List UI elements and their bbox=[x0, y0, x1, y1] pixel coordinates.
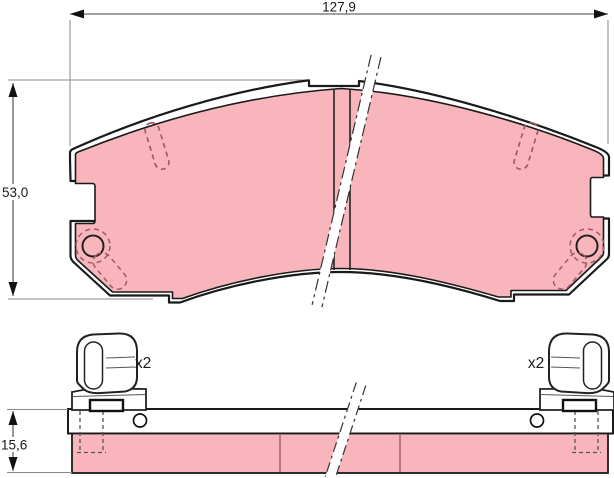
height-dimension-label: 53,0 bbox=[2, 185, 28, 200]
rivet-hole-right bbox=[531, 414, 544, 427]
arrowhead-top bbox=[9, 83, 18, 97]
brake-pad-technical-drawing: 127,9 53,0 bbox=[0, 0, 614, 478]
clip-tab bbox=[90, 400, 123, 411]
arrowhead-right bbox=[594, 10, 608, 19]
retaining-clip-right bbox=[540, 333, 614, 411]
clip-quantity-label-right: x2 bbox=[528, 355, 544, 372]
clip-quantity-label-left: x2 bbox=[135, 355, 151, 372]
arrowhead-left bbox=[70, 10, 84, 19]
arrowhead-bottom bbox=[9, 457, 18, 471]
retaining-clip-left bbox=[72, 333, 146, 411]
rivet-hole-left bbox=[134, 414, 147, 427]
pad-top-view bbox=[70, 55, 609, 307]
drawing-svg: 127,9 53,0 bbox=[0, 0, 614, 478]
clip-tab bbox=[563, 400, 596, 411]
width-dimension-label: 127,9 bbox=[322, 0, 356, 15]
dimension-thickness: 15,6 bbox=[0, 410, 72, 473]
clip-slot bbox=[584, 342, 602, 389]
arrowhead-bottom bbox=[9, 282, 18, 296]
side-view bbox=[68, 383, 613, 478]
clip-slot bbox=[85, 342, 103, 389]
thickness-dimension-label: 15,6 bbox=[1, 438, 27, 453]
arrowhead-top bbox=[9, 411, 18, 425]
